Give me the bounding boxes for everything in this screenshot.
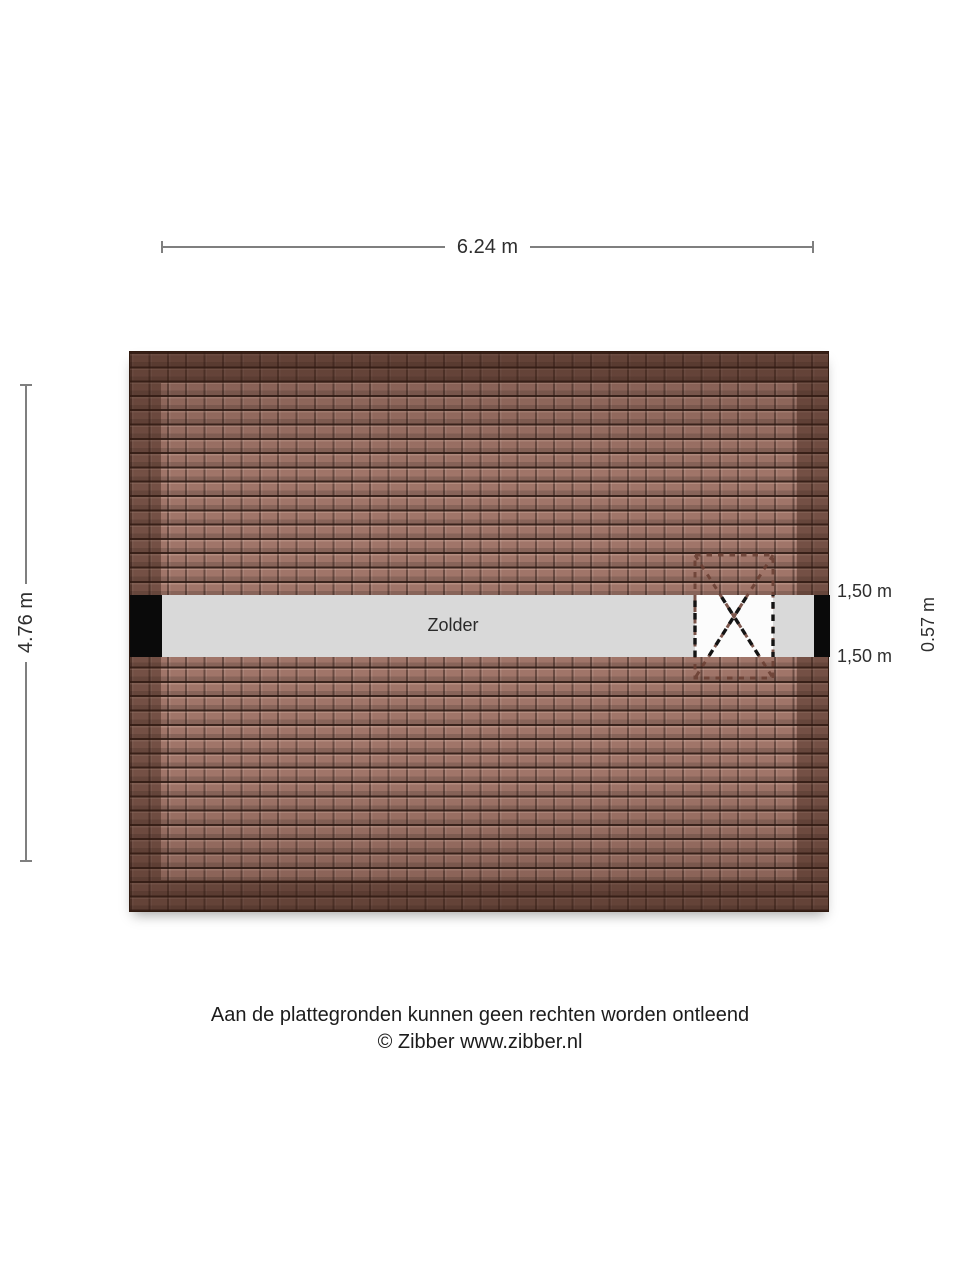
- roof-plan: Zolder: [129, 351, 829, 912]
- dimension-line: [25, 662, 27, 860]
- dimension-line: [163, 246, 445, 248]
- dimension-tick: [20, 860, 32, 862]
- dimension-line: [25, 386, 27, 584]
- skylight-height-label: 0.57 m: [918, 597, 939, 652]
- footer: Aan de plattegronden kunnen geen rechten…: [0, 1002, 960, 1056]
- skylight-opening: [695, 595, 773, 657]
- skylight-bottom-distance-label: 1,50 m: [837, 646, 892, 667]
- height-dimension-label: 4.76 m: [15, 584, 38, 661]
- floorplan-page: 6.24 m 4.76 m Zolder: [0, 0, 960, 1280]
- copyright-text: © Zibber www.zibber.nl: [0, 1029, 960, 1056]
- width-dimension: 6.24 m: [161, 235, 814, 259]
- width-dimension-label: 6.24 m: [445, 236, 530, 259]
- height-dimension: 4.76 m: [15, 384, 37, 862]
- dimension-tick: [812, 241, 814, 253]
- skylight-top-distance-label: 1,50 m: [837, 581, 892, 602]
- dimension-line: [530, 246, 812, 248]
- disclaimer-text: Aan de plattegronden kunnen geen rechten…: [0, 1002, 960, 1029]
- skylight-window: [130, 352, 830, 913]
- skylight-height-dimension: 0.57 m: [918, 582, 939, 668]
